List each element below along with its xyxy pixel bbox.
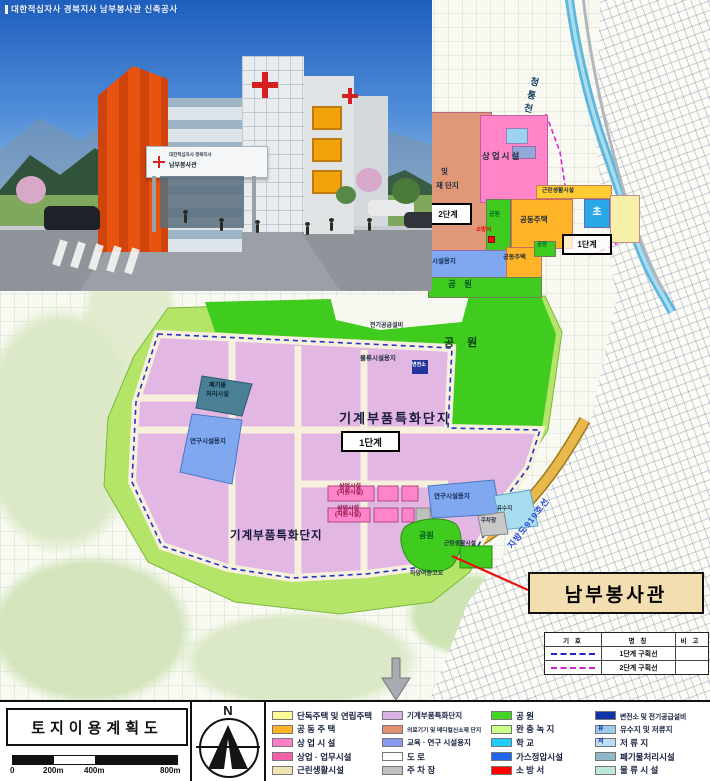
- land-use-plan-title: 토지이용계획도: [6, 708, 188, 746]
- label-medical-partial-1: 및: [441, 168, 448, 176]
- legend-item: 소 방 서: [491, 763, 563, 777]
- footer-divider: [190, 702, 192, 781]
- zone-park-upper-1: [486, 199, 511, 251]
- scale-bar: 0 200m 400m 800m: [12, 755, 178, 776]
- zone-school-elementary: 초: [584, 199, 610, 228]
- canopy-column: [152, 176, 156, 232]
- legend-item: 유유수지 및 저류지: [595, 723, 686, 737]
- symtab-header-note: 비 고: [676, 635, 705, 645]
- zone-detached-housing: [610, 195, 640, 243]
- scale-ticks: 0 200m 400m 800m: [12, 765, 178, 776]
- entrance-canopy-sign: 대한적십자사 경북지사 남부봉사관: [146, 146, 268, 178]
- symbol-table-header: 기 호 명 칭 비 고: [545, 633, 708, 647]
- callout-nambu-center: 남부봉사관: [528, 572, 704, 614]
- label-retention-pond: 유수지: [497, 507, 512, 513]
- person-figure: [256, 224, 259, 233]
- blossom-tree: [356, 168, 382, 192]
- river-shape: [569, 0, 672, 312]
- label-commercial-strip-1: 상업시설 (지원시설): [327, 484, 373, 497]
- red-cross-icon: [252, 72, 278, 98]
- symtab-header-symbol: 기 호: [545, 633, 602, 646]
- label-neighborhood-upper: 근린생활시설: [542, 188, 574, 194]
- legend-column-2: 기계부품특화단지 의료기기 및 메디컬신소재 단지 교육 · 연구 시설용지 도…: [382, 709, 481, 777]
- label-fire-station: 소방서: [476, 228, 491, 234]
- label-commercial-strip-2: 상업시설 (지원시설): [326, 506, 370, 519]
- scale-tick-800: 800m: [160, 766, 180, 775]
- legend: 단독주택 및 연립주택 공 동 주 택 상 업 시 설 상업 · 업무시설 근린…: [270, 707, 708, 779]
- person-figure: [220, 222, 223, 231]
- legend-item: 단독주택 및 연립주택: [272, 709, 372, 723]
- label-neighborhood-south: 근린생활시설: [444, 541, 476, 547]
- label-research-left: 연구시설용지: [190, 438, 226, 445]
- legend-item: 상 업 시 설: [272, 736, 372, 750]
- label-commercial-upper: 상업시설: [482, 152, 521, 161]
- north-letter: N: [196, 703, 260, 718]
- label-substation: 변전소: [412, 363, 426, 368]
- legend-column-1: 단독주택 및 연립주택 공 동 주 택 상 업 시 설 상업 · 업무시설 근린…: [272, 709, 372, 777]
- label-school-elem: 초: [592, 208, 601, 219]
- red-cross-icon: [342, 88, 358, 104]
- canopy-text-line2: 남부봉사관: [169, 160, 197, 169]
- label-park-upper-1: 공원: [489, 212, 500, 218]
- canopy-text-line1: 대한적십자사 경북지사: [169, 152, 212, 158]
- blossom-tree: [16, 176, 46, 204]
- land-use-plan-page: 초 상업시설 및 재 단지 근린생활시설 공원 공동주택 소방서 공동주택 공원…: [0, 0, 710, 781]
- park-south-zone-2: [460, 546, 492, 568]
- scale-tick-0: 0: [10, 766, 14, 775]
- legend-item: 완 충 녹 지: [491, 723, 563, 737]
- phase1-box-upper: 1단계: [562, 234, 612, 255]
- legend-item: 상업 · 업무시설: [272, 750, 372, 764]
- scale-tick-400: 400m: [84, 766, 104, 775]
- label-medical-partial-2: 재 단지: [436, 182, 459, 190]
- scale-tick-200: 200m: [43, 766, 63, 775]
- legend-item: 가스정압시설: [491, 750, 563, 764]
- symbol-table-row-phase2: 2단계 구획선: [545, 661, 708, 674]
- legend-item: 교육 · 연구 시설용지: [382, 736, 481, 750]
- person-figure: [184, 214, 187, 223]
- legend-item: 의료기기 및 메디컬신소재 단지: [382, 723, 481, 737]
- zone-park-band-upper: [428, 277, 542, 298]
- entrance-glass: [160, 176, 244, 228]
- label-park-band-upper: 공 원: [448, 280, 475, 289]
- label-apartments-upper-1: 공동주택: [520, 216, 548, 224]
- label-park-top: 공 원: [444, 338, 482, 350]
- legend-item: 근린생활시설: [272, 763, 372, 777]
- legend-column-4: 변전소 및 전기공급설비 유유수지 및 저류지 저저 류 지 폐기물처리시설 물…: [595, 709, 686, 777]
- title-bar-tick: [5, 5, 8, 14]
- green-tree: [392, 178, 420, 204]
- label-waste-1: 폐기물: [209, 383, 226, 390]
- label-parking: 주차장: [481, 519, 496, 525]
- legend-item: 주 차 장: [382, 763, 481, 777]
- symtab-row2-name: 2단계 구획선: [602, 661, 676, 674]
- page-title-bar: 대한적십자사 경북지사 남부봉사관 신축공사: [5, 3, 178, 15]
- legend-item: 학 교: [491, 736, 563, 750]
- label-apartments-upper-2: 공동주택: [503, 255, 526, 262]
- label-commercial1-line2: (지원시설): [327, 490, 373, 496]
- page-title: 대한적십자사 경북지사 남부봉사관 신축공사: [11, 3, 178, 15]
- label-park-upper-2: 공원: [537, 243, 547, 249]
- suv-vehicle: [44, 206, 100, 230]
- person-figure: [368, 222, 371, 231]
- river-highlight: [569, 0, 672, 312]
- orange-window-box: [312, 106, 342, 130]
- label-waste-2: 처리시설: [206, 392, 229, 399]
- north-arrow: N: [196, 703, 260, 780]
- scale-bar-segments: [12, 755, 178, 765]
- person-figure: [306, 226, 309, 235]
- label-school-hayang: 하양여중고교: [410, 571, 443, 577]
- red-cross-icon: [153, 156, 165, 168]
- legend-item: 공 동 주 택: [272, 723, 372, 737]
- dark-car: [404, 212, 432, 228]
- label-power-supply: 전기공급설비: [370, 323, 403, 329]
- symtab-row1-name: 1단계 구획선: [602, 647, 676, 660]
- label-research-right: 연구시설용지: [434, 493, 470, 500]
- label-complex-title: 기계부품특화단지: [310, 412, 480, 426]
- zone-pond-upper: [506, 128, 528, 144]
- legend-column-3: 공 원 완 충 녹 지 학 교 가스정압시설 소 방 서: [491, 709, 563, 777]
- label-park-south: 공원: [419, 532, 434, 541]
- symbol-table-row-phase1: 1단계 구획선: [545, 647, 708, 661]
- legend-item: 물 류 시 설: [595, 763, 686, 777]
- label-logistics: 물류시설용지: [360, 355, 396, 362]
- building-rendering: 대한적십자사 경북지사 남부봉사관 대한적십자사 경북지사 남부봉사관 신축공사: [0, 0, 432, 291]
- symbol-table: 기 호 명 칭 비 고 1단계 구획선 2단계 구획선: [544, 632, 709, 675]
- legend-item: 변전소 및 전기공급설비: [595, 709, 686, 723]
- north-arrow-icon: [204, 725, 252, 769]
- label-complex-title-2: 기계부품특화단지: [230, 530, 323, 542]
- map-footer: 토지이용계획도 0 200m 400m 800m N 단독주택 및 연립주택 공…: [0, 700, 710, 781]
- legend-item: 폐기물처리시설: [595, 750, 686, 764]
- label-commercial2-line2: (지원시설): [326, 512, 370, 518]
- zone-fire-station: [488, 236, 495, 243]
- symtab-header-name: 명 칭: [602, 633, 676, 646]
- person-figure: [330, 222, 333, 231]
- phase2-dash-icon: [545, 661, 602, 674]
- down-arrow-icon: [382, 658, 410, 700]
- phase1-box-main: 1단계: [341, 431, 400, 452]
- orange-window-box: [312, 138, 342, 162]
- footer-divider: [264, 702, 266, 781]
- legend-item: 저저 류 지: [595, 736, 686, 750]
- green-tree: [336, 186, 356, 204]
- legend-item: 기계부품특화단지: [382, 709, 481, 723]
- phase1-dash-icon: [545, 647, 602, 660]
- legend-item: 도 로: [382, 750, 481, 764]
- legend-item: 공 원: [491, 709, 563, 723]
